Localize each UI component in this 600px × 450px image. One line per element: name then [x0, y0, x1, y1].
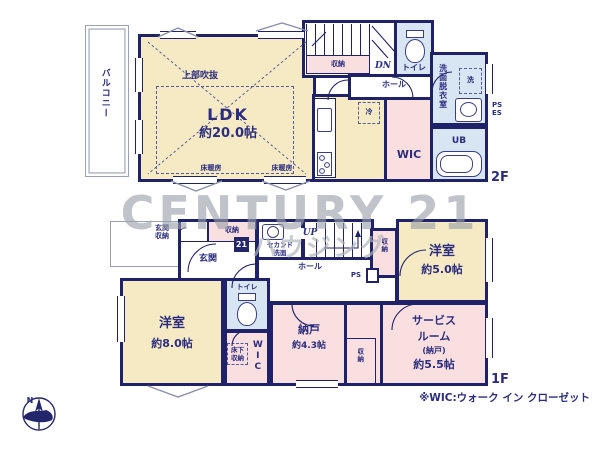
washbasin-bowl-2f: [460, 102, 477, 117]
ps-2f: PS: [492, 101, 502, 109]
window: [173, 176, 217, 184]
ps-box-1f: [366, 268, 379, 283]
century21-logo: 21: [234, 237, 249, 252]
toilet-tank-1f: [238, 293, 256, 301]
bedroom-8: [120, 278, 224, 386]
ps-es-label: PS ES: [492, 101, 512, 118]
window: [160, 31, 196, 39]
floor1-tag: 1F: [491, 372, 521, 388]
storeroom-name: 納戸: [284, 323, 334, 336]
toilet-label-2f: トイレ: [396, 63, 432, 73]
toilet-bowl-1f: [237, 302, 257, 326]
toilet-bowl-2f: [405, 39, 425, 63]
service-room-l4: 約5.5帖: [404, 358, 464, 371]
storeroom-size: 約4.3帖: [281, 341, 337, 352]
watermark-company: ハウジング: [252, 228, 387, 264]
bay-window-mark: [256, 23, 308, 31]
ldk-name: LDK: [188, 105, 268, 124]
window: [485, 238, 493, 282]
kitchen-stove: [317, 152, 332, 176]
underfloor-l1: 床下: [231, 346, 244, 354]
wic-2f: [384, 97, 434, 182]
bedroom-5-name: 洋室: [412, 244, 472, 260]
underfloor-l2: 収納: [231, 354, 244, 362]
window: [135, 120, 143, 154]
floor-heating-right: 床暖房: [266, 164, 298, 172]
compass-land: [24, 410, 53, 422]
window: [296, 380, 338, 388]
floor2-tag: 2F: [491, 170, 521, 186]
service-room-l3: (納戸): [404, 346, 464, 356]
storage-bottom-label-1f: 収納: [355, 348, 363, 363]
bedroom-8-size: 約8.0帖: [139, 337, 205, 350]
window: [264, 176, 306, 184]
service-room-l2: ルーム: [404, 330, 464, 343]
window: [117, 296, 125, 342]
hall-label-2f: ホール: [372, 80, 416, 90]
wic-footnote: ※WIC:ウォーク イン クローゼット: [340, 392, 590, 405]
window: [135, 58, 143, 92]
dn-label: DN: [372, 61, 394, 72]
balcony-label: バルコニー: [99, 68, 110, 118]
stair-storage-label-2f: 収納: [318, 60, 358, 68]
toilet-label-1f: トイレ: [229, 283, 265, 291]
underfloor-storage-label: 床下 収納: [227, 347, 248, 363]
fridge-label: 冷: [360, 108, 378, 116]
es-2f: ES: [492, 109, 502, 117]
toilet-tank-2f: [406, 30, 424, 38]
kitchen-sink: [317, 108, 332, 132]
washer-label: 洗: [461, 76, 480, 84]
window: [485, 64, 493, 94]
ps-label-1f: PS: [348, 271, 364, 279]
bathtub-inner: [440, 155, 473, 173]
floorplan-canvas: バルコニー 収納 DN トイレ ホール WIC 洗面脱衣室 洗 UB 冷 上部吹…: [0, 0, 600, 450]
bedroom-5-size: 約5.0帖: [409, 263, 475, 276]
washroom-label: 洗面脱衣室: [438, 64, 448, 109]
floor-heating-left: 床暖房: [195, 164, 227, 172]
bedroom-8-name: 洋室: [142, 316, 202, 332]
ub-label: UB: [440, 136, 478, 147]
window: [485, 318, 493, 358]
stair-treads-2f: [306, 24, 370, 56]
window: [258, 31, 304, 39]
bay-window-mark: [148, 386, 208, 397]
entrance-label: 玄関: [188, 254, 228, 265]
service-room-l1: サービス: [404, 314, 464, 327]
compass-north-label: N: [24, 396, 36, 406]
ldk-size: 約20.0帖: [183, 126, 273, 142]
wic-label-2f: WIC: [390, 148, 428, 161]
open-ceiling-label: 上部吹抜: [160, 71, 240, 82]
wic-label-1f: WIC: [252, 340, 263, 373]
compass-needle: [35, 398, 43, 412]
